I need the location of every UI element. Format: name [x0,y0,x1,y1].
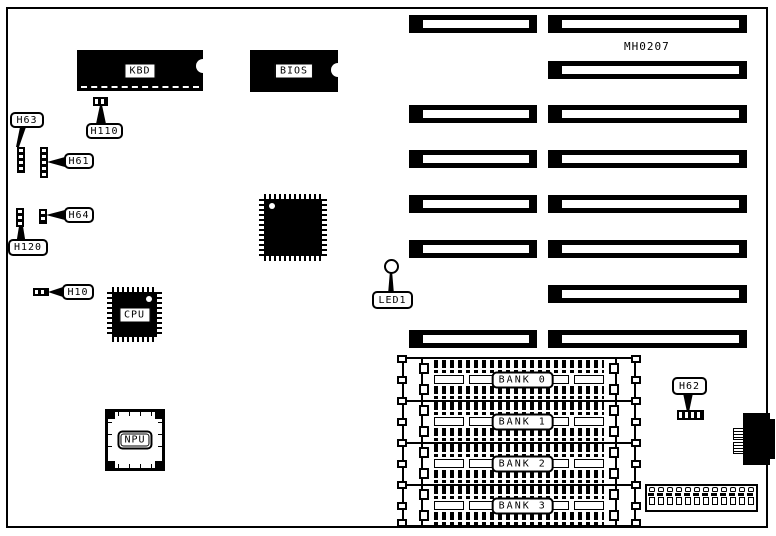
pin-header-h110 [93,97,108,106]
expansion-slot-short [409,105,537,123]
power-pin-icon [667,487,673,492]
keyboard-connector-pin [733,428,744,440]
socket-corner-icon [108,461,115,468]
power-pin-icon [676,487,682,492]
power-pin-icon [658,487,664,492]
power-socket-icon [694,497,700,505]
simm-latch-icon [609,405,619,416]
cpu-chip: CPU [107,287,162,342]
power-pin-icon [685,487,691,492]
simm-latch-icon [419,510,429,521]
expansion-slot-long [548,61,747,79]
simm-rail-square [631,502,641,510]
expansion-slot-long [548,285,747,303]
simm-latch-icon [419,405,429,416]
simm-latch-icon [419,468,429,479]
power-socket-icon [649,497,655,505]
led1-indicator [384,259,399,274]
keyboard-connector-body [743,413,770,465]
bios-chip: BIOS [250,50,338,92]
callout-h61: H61 [64,153,94,169]
pin1-dot-icon [146,296,152,302]
expansion-slot-long [548,15,747,33]
simm-latch-icon [419,363,429,374]
power-pin-icon [712,487,718,492]
simm-rail-square [631,439,641,447]
expansion-slot-long [548,150,747,168]
part-number-label: MH0207 [624,40,670,53]
power-pin-icon [721,487,727,492]
expansion-slot-short [409,15,537,33]
callout-h120: H120 [8,239,48,256]
pin-header-h120 [16,208,24,227]
expansion-slot-short [409,195,537,213]
simm-rail-square [397,397,407,405]
simm-rail-square [397,502,407,510]
simm-latch-icon [609,510,619,521]
chip-notch-icon [196,59,210,73]
simm-chip [434,375,464,384]
expansion-slot-long [548,105,747,123]
simm-latch-icon [419,384,429,395]
simm-rail-square [397,481,407,489]
power-socket-icon [712,497,718,505]
pin-header-h64 [39,209,47,224]
power-pin-icon [694,487,700,492]
power-socket-icon [685,497,691,505]
power-socket-icon [739,497,745,505]
socket-ticks [108,422,112,458]
simm-chip [434,459,464,468]
simm-latch-icon [419,447,429,458]
bank-row-3: BANK 3 [434,486,604,525]
simm-rail-square [397,460,407,468]
simm-rail-square [631,376,641,384]
socket-ticks [118,464,152,468]
simm-latch-icon [419,489,429,500]
pin1-dot-icon [269,203,275,209]
bank2-label: BANK 2 [492,455,554,472]
simm-latch-icon [609,363,619,374]
simm-chip [434,417,464,426]
simm-chip [574,501,604,510]
simm-rail-square [397,418,407,426]
power-socket-icon [658,497,664,505]
callout-h10: H10 [62,284,94,300]
motherboard-diagram: KBD BIOS MH0207 H63 H110 H61 H64 H120 H1… [0,0,776,536]
chip-notch-icon [331,63,345,77]
kbd-pin-stripe [81,86,199,88]
callout-h64: H64 [64,207,94,223]
power-pin-icon [730,487,736,492]
simm-rail-square [631,397,641,405]
expansion-slot-long [548,330,747,348]
expansion-slot-long [548,240,747,258]
expansion-slot-short [409,330,537,348]
cpu-chip-label: CPU [119,307,150,322]
simm-latch-icon [609,447,619,458]
socket-corner-icon [108,412,115,419]
bank3-label: BANK 3 [492,497,554,514]
simm-rail-square [631,481,641,489]
bank1-label: BANK 1 [492,413,554,430]
simm-latch-icon [609,426,619,437]
power-socket-icon [703,497,709,505]
callout-led1: LED1 [372,291,413,309]
npu-label: NPU [120,434,149,447]
power-socket-icon [721,497,727,505]
socket-corner-icon [155,461,162,468]
kbd-chip-label: KBD [124,63,155,78]
simm-rail-square [631,460,641,468]
power-pin-icon [739,487,745,492]
keyboard-connector-pin [733,442,744,454]
bank-row-2: BANK 2 [434,444,604,483]
simm-chip [574,375,604,384]
kbd-chip: KBD [77,50,203,91]
simm-chip [574,459,604,468]
simm-latch-icon [609,384,619,395]
simm-rail-square [397,376,407,384]
simm-rail-square [631,355,641,363]
power-socket-row [647,496,756,506]
bank0-label: BANK 0 [492,371,554,388]
power-socket-icon [676,497,682,505]
power-socket-icon [667,497,673,505]
power-socket-icon [748,497,754,505]
bios-chip-label: BIOS [275,64,313,79]
socket-ticks [118,412,152,416]
simm-rail-square [631,519,641,527]
bank-row-0: BANK 0 [434,360,604,399]
callout-h62: H62 [672,377,707,395]
memory-bank-area: BANK 0 BANK 1 BANK 2 BA [402,357,636,527]
power-connector [645,484,758,512]
callout-h110: H110 [86,123,123,139]
simm-latch-icon [609,468,619,479]
simm-rail-square [631,418,641,426]
pin-header-h63 [17,147,25,173]
expansion-slot-short [409,150,537,168]
power-pin-icon [748,487,754,492]
keyboard-connector [733,413,776,465]
keyboard-connector-bump [770,419,775,459]
asic-chip [259,194,327,261]
expansion-slot-short [409,240,537,258]
simm-latch-icon [609,489,619,500]
simm-chip [574,417,604,426]
power-pin-icon [649,487,655,492]
simm-rail-square [397,519,407,527]
callout-h63: H63 [10,112,44,128]
power-pin-caps [647,486,756,492]
expansion-slot-long [548,195,747,213]
simm-rail-square [397,439,407,447]
power-socket-icon [730,497,736,505]
bank-row-1: BANK 1 [434,402,604,441]
pin-header-h10 [33,288,49,296]
simm-latch-icon [419,426,429,437]
socket-ticks [158,422,162,458]
pin-header-h61 [40,147,48,178]
simm-chip [434,501,464,510]
npu-socket: NPU [105,409,165,471]
socket-corner-icon [155,412,162,419]
npu-label-box: NPU [117,431,152,450]
power-pin-icon [703,487,709,492]
simm-rail-square [397,355,407,363]
pin-header-h62 [677,410,704,420]
